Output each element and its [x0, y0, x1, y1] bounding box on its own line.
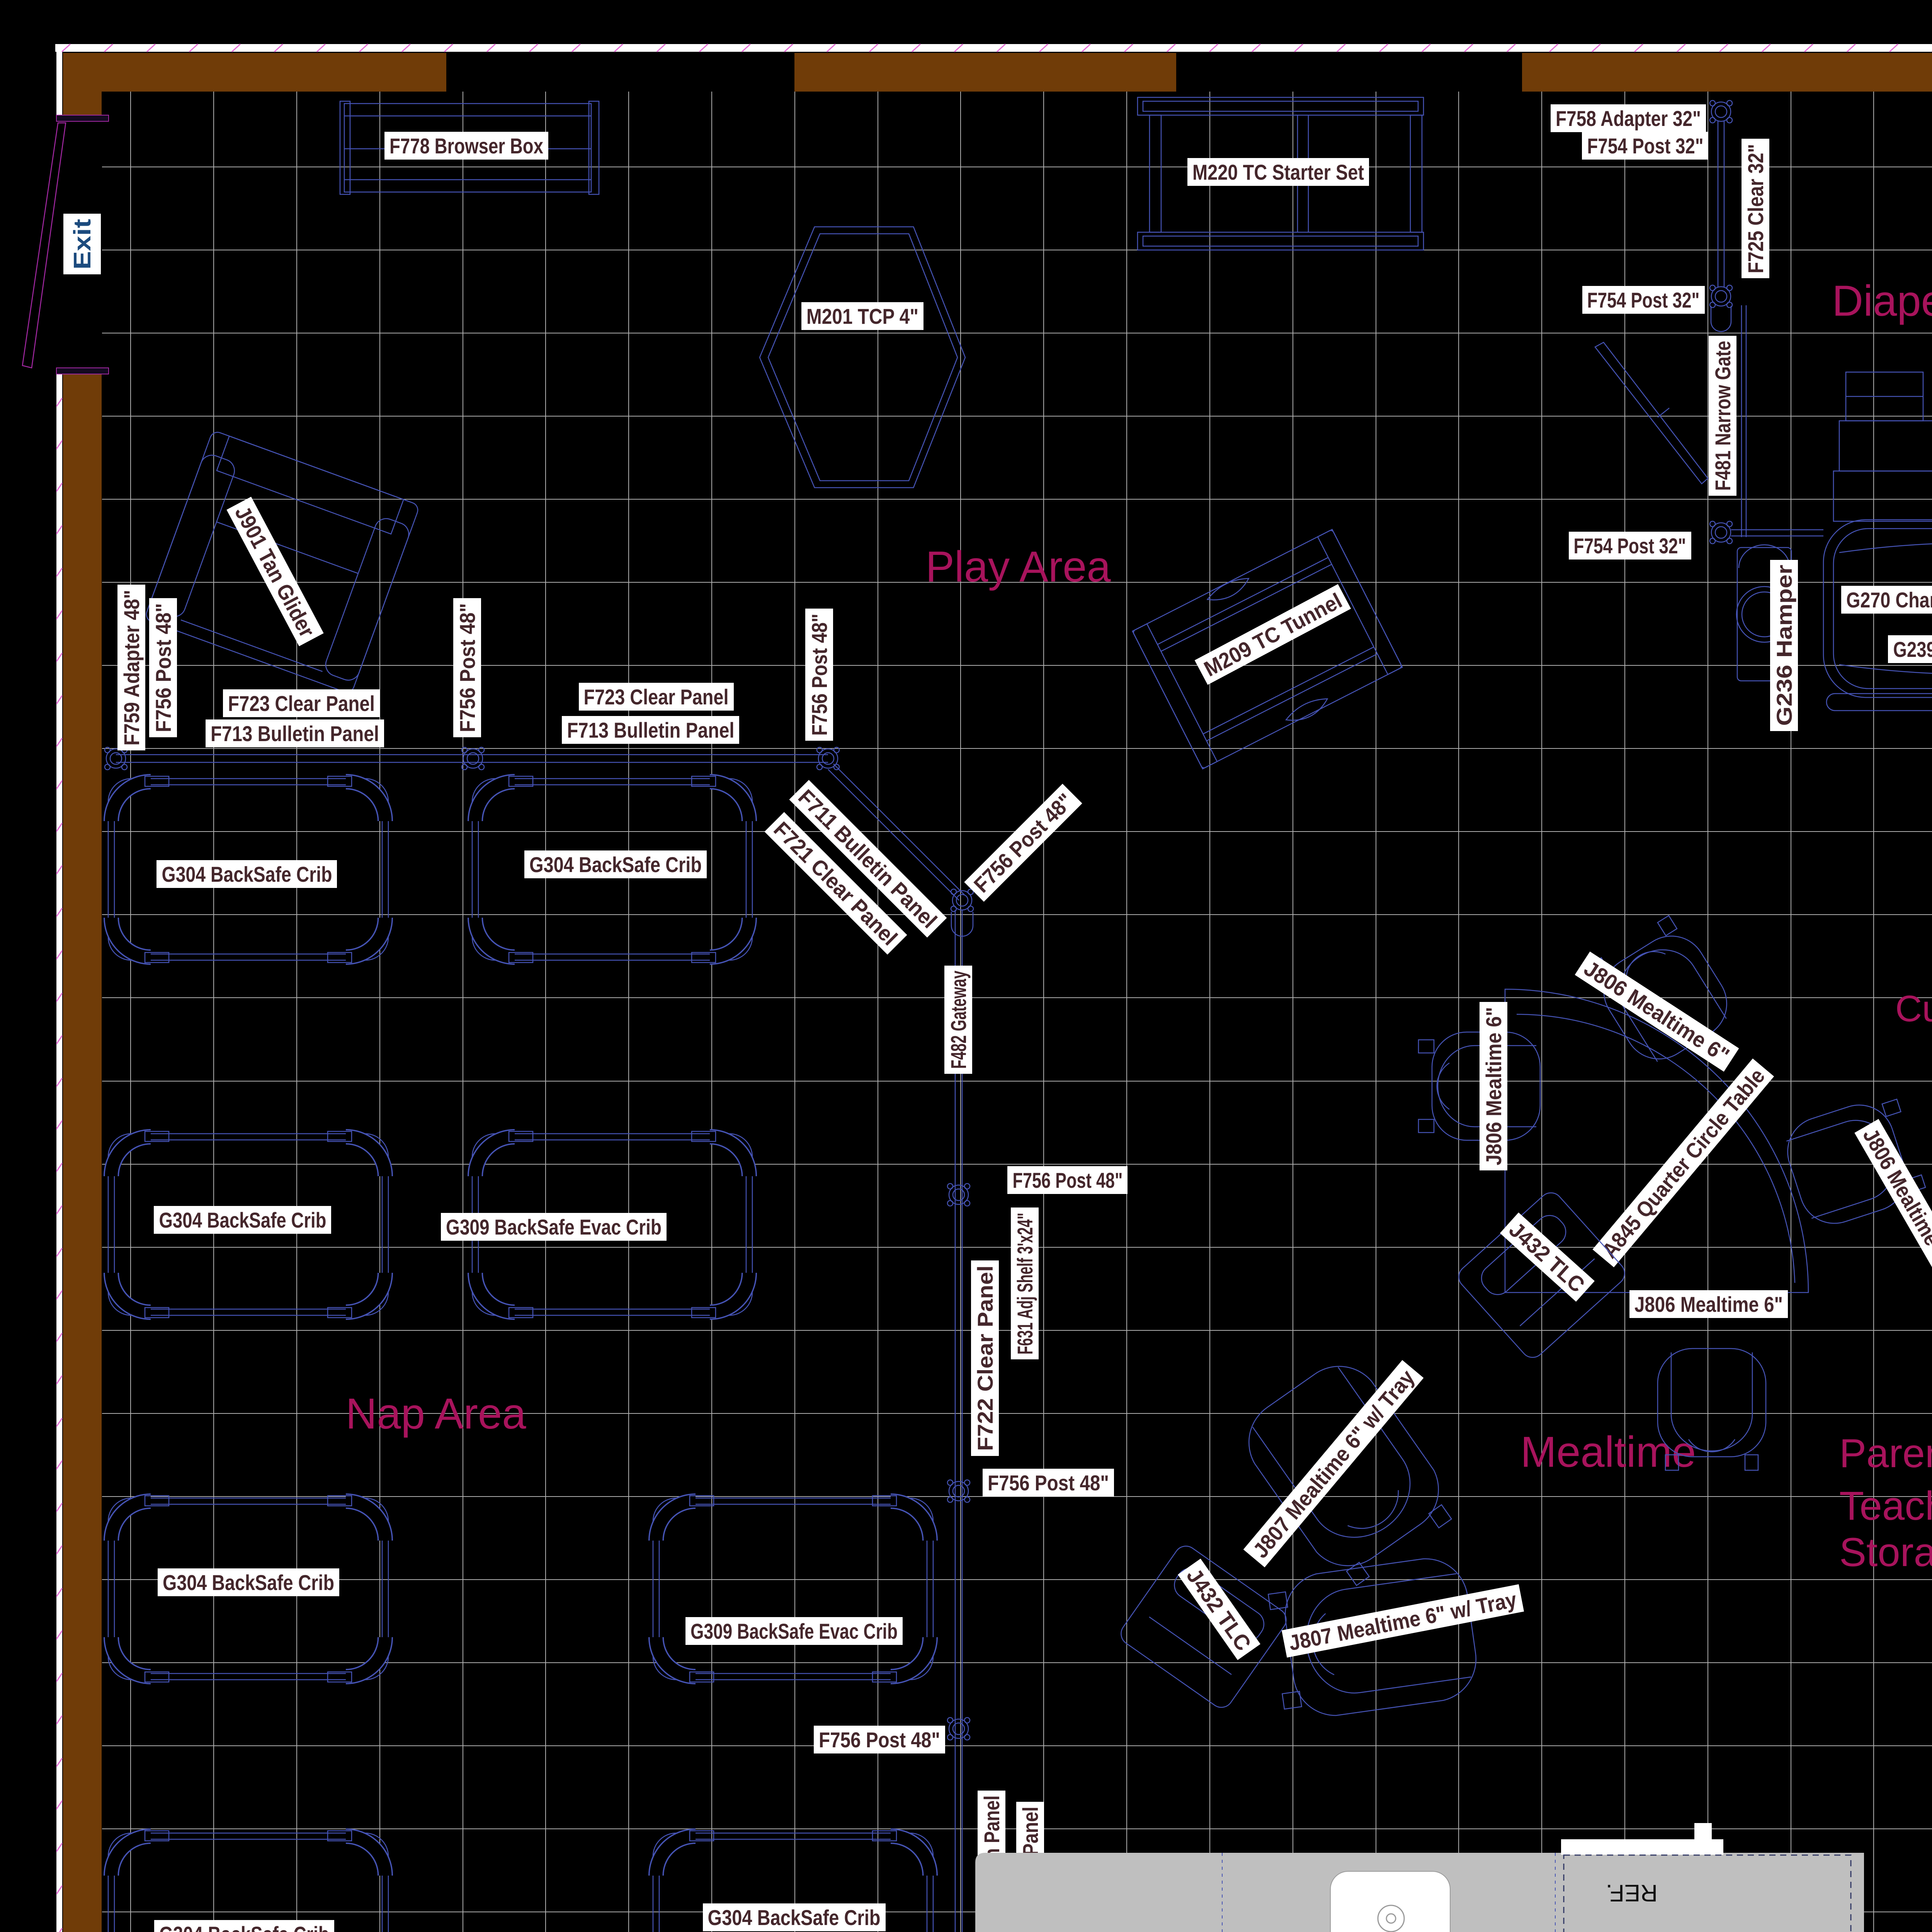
svg-text:F754 Post 32": F754 Post 32" — [1574, 534, 1686, 558]
svg-text:G309 BackSafe Evac Crib: G309 BackSafe Evac Crib — [690, 1619, 898, 1643]
svg-text:F754 Post 32": F754 Post 32" — [1587, 134, 1704, 158]
svg-text:F778 Browser Box: F778 Browser Box — [389, 134, 543, 158]
svg-text:F758 Adapter 32": F758 Adapter 32" — [1556, 106, 1701, 131]
svg-text:Exit: Exit — [69, 219, 96, 270]
svg-text:F756 Post 48": F756 Post 48" — [819, 1728, 940, 1752]
svg-text:G304 BackSafe Crib: G304 BackSafe Crib — [708, 1905, 881, 1930]
svg-text:M201 TCP 4": M201 TCP 4" — [806, 304, 918, 328]
svg-text:Mealtime: Mealtime — [1520, 1428, 1696, 1476]
svg-text:F756 Post 48": F756 Post 48" — [151, 603, 175, 732]
svg-text:F723 Clear Panel: F723 Clear Panel — [228, 691, 375, 716]
svg-text:F713 Bulletin Panel: F713 Bulletin Panel — [211, 721, 379, 746]
svg-text:G304 BackSafe Crib: G304 BackSafe Crib — [162, 862, 332, 886]
svg-text:F713 Bulletin Panel: F713 Bulletin Panel — [567, 718, 735, 742]
svg-text:F756 Post 48": F756 Post 48" — [988, 1471, 1109, 1495]
svg-text:G304 BackSafe Crib: G304 BackSafe Crib — [163, 1570, 334, 1595]
svg-text:Play Area: Play Area — [925, 543, 1111, 591]
svg-text:F725 Clear 32": F725 Clear 32" — [1743, 144, 1768, 274]
svg-text:G304 BackSafe Crib: G304 BackSafe Crib — [159, 1922, 329, 1932]
svg-text:REF.: REF. — [1606, 1879, 1658, 1906]
svg-text:F482 Gateway: F482 Gateway — [946, 971, 971, 1069]
svg-text:G236 Hamper: G236 Hamper — [1772, 565, 1796, 726]
svg-text:G239 Changing Divider: G239 Changing Divider — [1893, 637, 1932, 662]
svg-text:G270 Changing Table w/Steps: G270 Changing Table w/Steps — [1846, 588, 1932, 612]
svg-text:G304 BackSafe Crib: G304 BackSafe Crib — [529, 852, 702, 877]
svg-text:Cubbies: Cubbies — [1895, 988, 1932, 1029]
svg-text:F723 Clear Panel: F723 Clear Panel — [584, 685, 729, 709]
svg-text:G304 BackSafe Crib: G304 BackSafe Crib — [159, 1208, 327, 1232]
svg-text:Diapering: Diapering — [1832, 277, 1932, 325]
svg-text:F722 Clear Panel: F722 Clear Panel — [973, 1265, 997, 1451]
svg-text:Storage: Storage — [1839, 1530, 1932, 1575]
svg-text:M220 TC Starter Set: M220 TC Starter Set — [1192, 160, 1364, 184]
svg-text:F756 Post 48": F756 Post 48" — [1013, 1168, 1123, 1192]
svg-text:F756 Post 48": F756 Post 48" — [807, 614, 832, 736]
svg-text:F631 Adj Shelf 3'x24": F631 Adj Shelf 3'x24" — [1013, 1213, 1037, 1355]
svg-text:F481 Narrow Gate: F481 Narrow Gate — [1711, 341, 1735, 491]
svg-text:G309 BackSafe Evac Crib: G309 BackSafe Evac Crib — [446, 1215, 662, 1239]
svg-text:J806 Mealtime 6": J806 Mealtime 6" — [1481, 1007, 1506, 1165]
svg-text:Parent Sign-in/: Parent Sign-in/ — [1839, 1431, 1932, 1476]
svg-text:F756 Post 48": F756 Post 48" — [455, 603, 480, 732]
svg-text:Teacher: Teacher — [1839, 1483, 1932, 1529]
svg-text:F754 Post 32": F754 Post 32" — [1587, 288, 1700, 312]
svg-text:Nap Area: Nap Area — [346, 1389, 527, 1438]
svg-text:F759 Adapter 48": F759 Adapter 48" — [119, 590, 144, 746]
svg-text:J806 Mealtime 6": J806 Mealtime 6" — [1634, 1292, 1783, 1316]
